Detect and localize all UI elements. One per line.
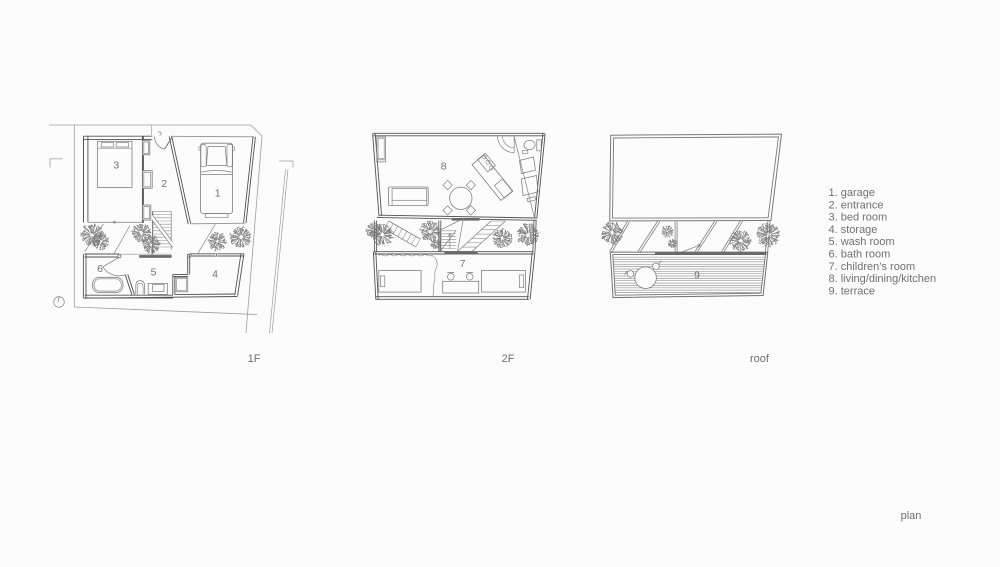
svg-text:1: 1 (215, 188, 221, 200)
svg-text:5: 5 (151, 267, 157, 279)
svg-text:9. terrace: 9. terrace (829, 285, 875, 297)
svg-text:4: 4 (212, 269, 218, 281)
svg-text:2F: 2F (502, 353, 515, 365)
svg-text:1. garage: 1. garage (829, 187, 875, 199)
svg-text:1F: 1F (248, 353, 261, 365)
svg-text:roof: roof (750, 353, 770, 365)
svg-text:3. bed room: 3. bed room (829, 212, 888, 224)
svg-text:plan: plan (901, 510, 922, 522)
svg-text:3: 3 (113, 159, 119, 171)
svg-text:9: 9 (694, 270, 700, 282)
svg-text:7. children’s room: 7. children’s room (829, 261, 916, 273)
svg-text:5. wash room: 5. wash room (829, 236, 895, 248)
svg-text:6. bath room: 6. bath room (829, 249, 891, 261)
svg-text:8: 8 (441, 160, 447, 172)
svg-text:2. entrance: 2. entrance (829, 199, 884, 211)
svg-text:8. living/dining/kitchen: 8. living/dining/kitchen (829, 273, 937, 285)
svg-text:2: 2 (161, 178, 167, 190)
svg-text:6: 6 (97, 263, 103, 275)
svg-text:4. storage: 4. storage (829, 224, 878, 236)
svg-text:7: 7 (460, 258, 466, 270)
